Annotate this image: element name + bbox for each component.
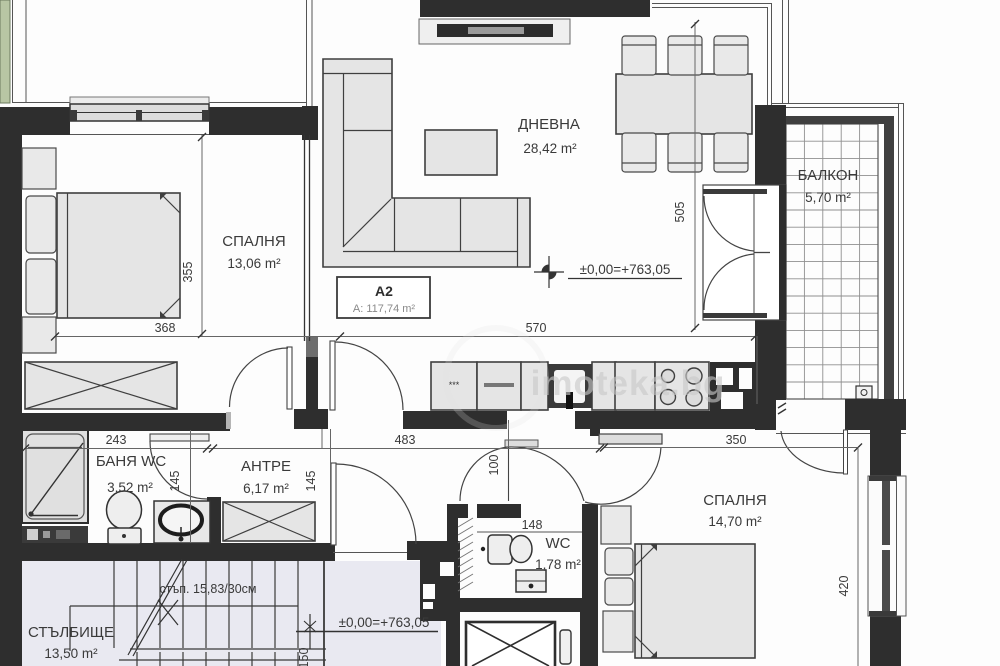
- svg-text:148: 148: [522, 518, 543, 532]
- svg-text:100: 100: [487, 455, 501, 476]
- svg-text:368: 368: [155, 321, 176, 335]
- svg-text:А2: А2: [375, 283, 393, 299]
- svg-text:стъп. 15,83/30см: стъп. 15,83/30см: [159, 582, 256, 596]
- svg-text:1,78 m²: 1,78 m²: [535, 557, 581, 572]
- svg-text:А: 117,74 m²: А: 117,74 m²: [353, 303, 415, 315]
- svg-text:14,70 m²: 14,70 m²: [708, 514, 762, 529]
- svg-text:***: ***: [449, 380, 460, 390]
- svg-text:150: 150: [297, 648, 311, 666]
- svg-text:13,06 m²: 13,06 m²: [227, 256, 281, 271]
- svg-text:СТЪЛБИЩЕ: СТЪЛБИЩЕ: [28, 624, 114, 641]
- svg-text:355: 355: [181, 262, 195, 283]
- svg-text:ДНЕВНА: ДНЕВНА: [518, 116, 580, 133]
- svg-text:483: 483: [395, 433, 416, 447]
- svg-text:БАЛКОН: БАЛКОН: [798, 167, 859, 184]
- svg-text:6,17 m²: 6,17 m²: [243, 481, 289, 496]
- svg-text:3,52 m²: 3,52 m²: [107, 480, 153, 495]
- svg-text:145: 145: [304, 471, 318, 492]
- svg-text:АНТРЕ: АНТРЕ: [241, 458, 291, 475]
- svg-text:imoteka.bg: imoteka.bg: [531, 364, 726, 403]
- svg-text:WC: WC: [546, 535, 571, 552]
- svg-text:СПАЛНЯ: СПАЛНЯ: [222, 233, 285, 250]
- svg-text:145: 145: [168, 471, 182, 492]
- svg-text:570: 570: [526, 321, 547, 335]
- svg-text:420: 420: [837, 576, 851, 597]
- svg-text:350: 350: [726, 433, 747, 447]
- svg-text:28,42 m²: 28,42 m²: [523, 141, 577, 156]
- svg-text:13,50 m²: 13,50 m²: [44, 646, 98, 661]
- svg-text:СПАЛНЯ: СПАЛНЯ: [703, 492, 766, 509]
- svg-text:505: 505: [673, 202, 687, 223]
- svg-text:БАНЯ WC: БАНЯ WC: [96, 453, 167, 470]
- svg-text:5,70 m²: 5,70 m²: [805, 190, 851, 205]
- svg-text:±0,00=+763,05: ±0,00=+763,05: [339, 615, 430, 630]
- svg-text:243: 243: [106, 433, 127, 447]
- svg-text:±0,00=+763,05: ±0,00=+763,05: [580, 262, 671, 277]
